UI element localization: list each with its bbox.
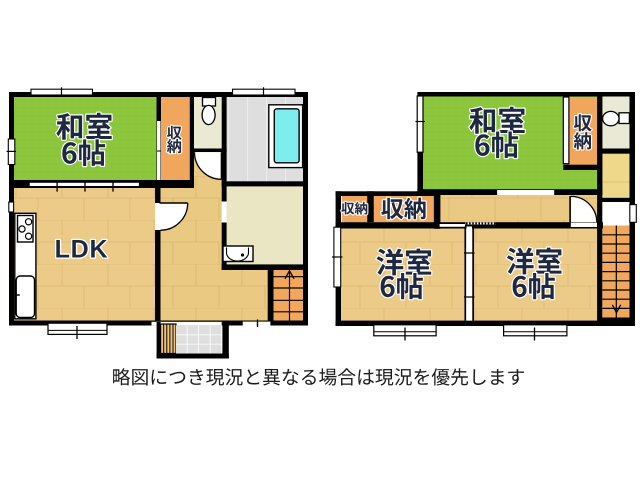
svg-text:LDK: LDK (55, 236, 109, 264)
